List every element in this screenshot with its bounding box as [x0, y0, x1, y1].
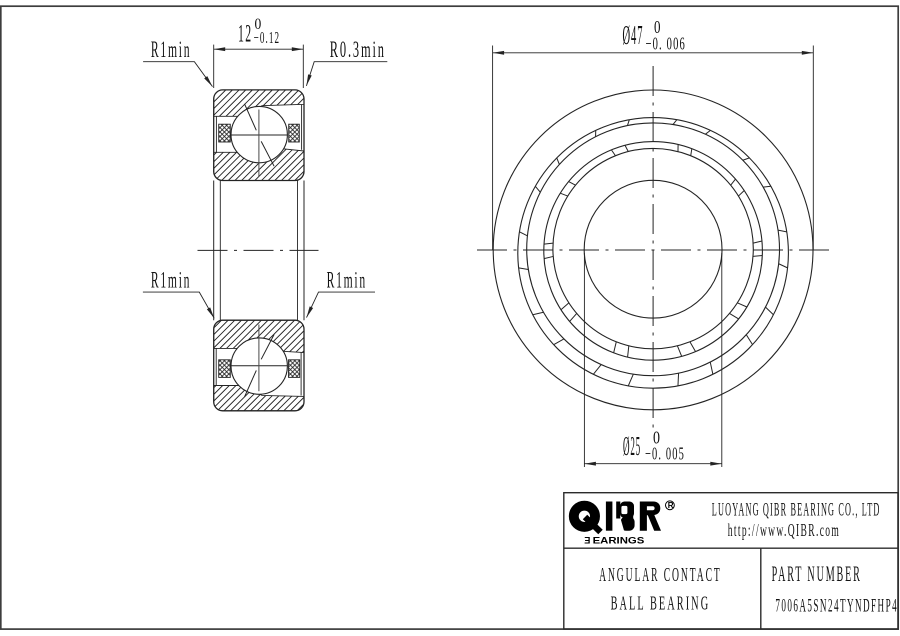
svg-text:PART NUMBER: PART NUMBER [772, 561, 862, 586]
svg-text:E: E [584, 536, 590, 546]
svg-text:R: R [668, 501, 674, 510]
svg-text:12: 12 [238, 18, 253, 47]
svg-text:R1min: R1min [151, 37, 191, 63]
svg-text:7006A5SN24TYNDFHP4: 7006A5SN24TYNDFHP4 [775, 596, 898, 617]
svg-text:LUOYANG QIBR BEARING CO., LTD: LUOYANG QIBR BEARING CO., LTD [712, 500, 881, 521]
svg-text:R1min: R1min [327, 267, 367, 293]
svg-text:http://www.QIBR.com: http://www.QIBR.com [728, 520, 841, 540]
svg-text:Ø47: Ø47 [623, 20, 644, 50]
svg-text:−0.12: −0.12 [254, 28, 281, 47]
svg-text:R0.3min: R0.3min [330, 37, 386, 63]
svg-text:R1min: R1min [151, 267, 191, 293]
svg-text:−0. 005: −0. 005 [645, 444, 685, 464]
svg-text:ANGULAR CONTACT: ANGULAR CONTACT [599, 564, 722, 586]
svg-text:BALL BEARING: BALL BEARING [611, 593, 711, 615]
svg-text:−0. 006: −0. 006 [646, 34, 687, 54]
svg-text:EARINGS: EARINGS [593, 536, 645, 546]
svg-text:Ø25: Ø25 [623, 431, 641, 462]
